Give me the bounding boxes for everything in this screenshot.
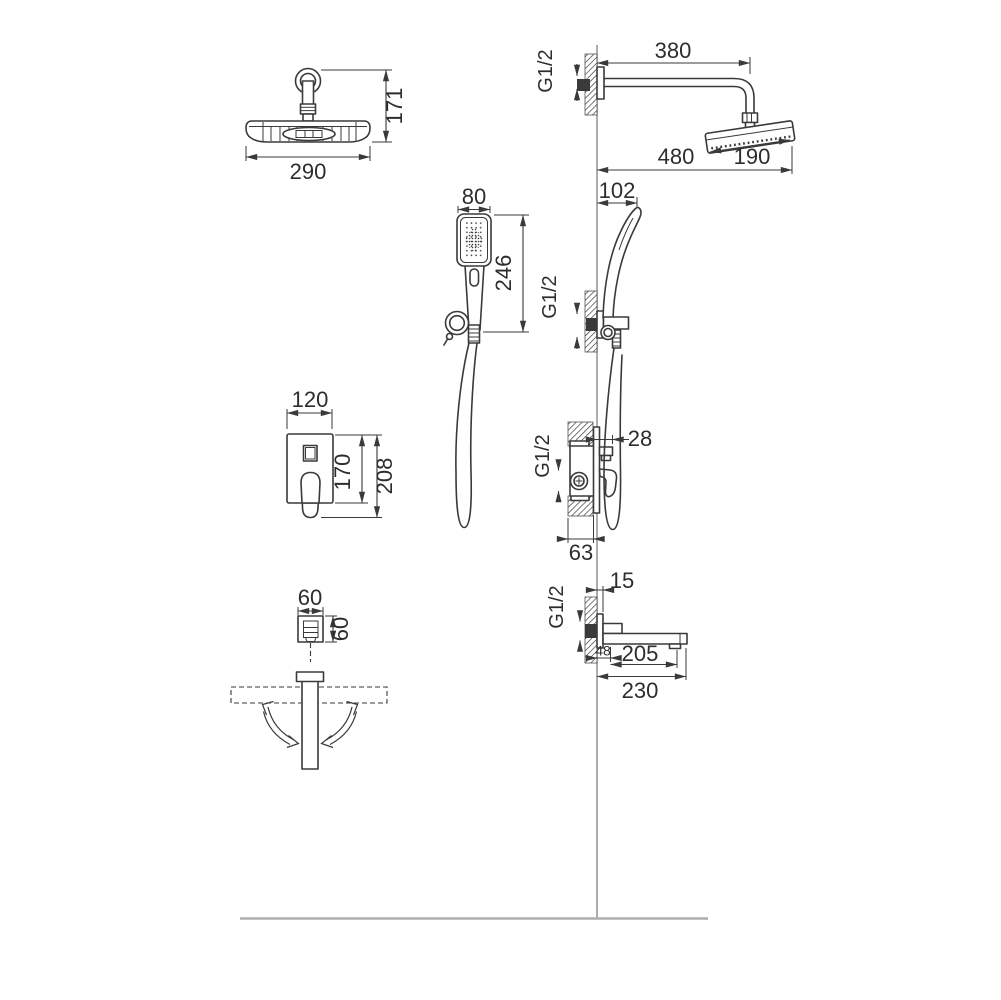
dim-spout-height: 60 <box>328 617 353 641</box>
handshower-body-side <box>603 208 641 319</box>
mixer-side-view: 28 G1/2 63 <box>532 422 652 565</box>
dim-spout-base-length: 48 <box>595 643 611 659</box>
dim-spout-plate-depth: 15 <box>610 568 634 593</box>
hand-shower-front-view: 80 246 <box>444 184 529 528</box>
spout-wall-union <box>585 624 597 638</box>
dim-spout-overall-reach: 230 <box>622 678 659 703</box>
shower-stem <box>303 81 314 107</box>
thread-label-holder: G1/2 <box>539 275 561 318</box>
dim-handshower-width: 80 <box>462 184 486 209</box>
spout-flange-top <box>297 672 324 682</box>
hose-connector-front <box>469 325 480 343</box>
dim-overhead-height: 171 <box>382 88 407 125</box>
spout-side-view: 15 G1/2 48 205 230 <box>546 568 687 703</box>
dim-recess-depth: 63 <box>569 540 593 565</box>
dim-mixer-plate-height: 170 <box>330 454 355 491</box>
arm-wall-union <box>577 79 590 91</box>
thread-label-mixer: G1/2 <box>532 434 554 477</box>
spout-front-view: 60 60 <box>298 585 353 662</box>
spout-base-side <box>603 624 622 634</box>
stem-nut <box>301 104 316 114</box>
mixer-front-view: 120 170 208 <box>287 387 397 518</box>
diverter-button-side <box>600 447 613 456</box>
dim-arm-length: 380 <box>655 38 692 63</box>
spray-face-oval <box>283 128 335 141</box>
holder-wall-union <box>586 318 597 331</box>
mixer-lever-side <box>600 469 617 497</box>
stem-neck <box>303 114 313 121</box>
spout-top-view <box>231 672 387 769</box>
dim-mixer-overall-height: 208 <box>372 458 397 495</box>
hose-front <box>456 343 477 528</box>
mixer-lever-front-top <box>301 473 320 504</box>
swivel-arrow-left <box>263 702 299 748</box>
shower-arm-side-view: 380 G1/2 480 190 102 <box>535 38 795 213</box>
dim-handshower-length: 246 <box>491 255 516 292</box>
swivel-arrow-right <box>322 702 358 748</box>
thread-label-spout: G1/2 <box>546 585 568 628</box>
arm-nut <box>743 113 758 123</box>
spout-body-front <box>298 616 323 642</box>
technical-drawing-page: 171 290 80 246 <box>0 0 1001 1000</box>
dim-arm-reach: 480 <box>658 144 695 169</box>
drawing-canvas: 171 290 80 246 <box>0 0 1001 1000</box>
spout-aerator-side <box>670 644 681 649</box>
dim-spout-width: 60 <box>298 585 322 610</box>
dim-spout-reach: 205 <box>622 641 659 666</box>
dim-handle-offset: 28 <box>628 426 652 451</box>
dim-head-width: 190 <box>734 144 771 169</box>
thread-label-shower-arm: G1/2 <box>535 49 557 92</box>
dim-head-clearance: 102 <box>599 178 636 203</box>
dim-mixer-width: 120 <box>292 387 329 412</box>
arm-escutcheon <box>597 67 604 99</box>
overhead-shower-front-view: 171 290 <box>246 69 407 185</box>
handshower-mode-button <box>470 269 479 286</box>
shower-arm-pipe <box>604 79 754 114</box>
holder-ring-side <box>601 326 615 340</box>
spout-body-top <box>302 681 318 769</box>
dim-overhead-width: 290 <box>290 159 327 184</box>
